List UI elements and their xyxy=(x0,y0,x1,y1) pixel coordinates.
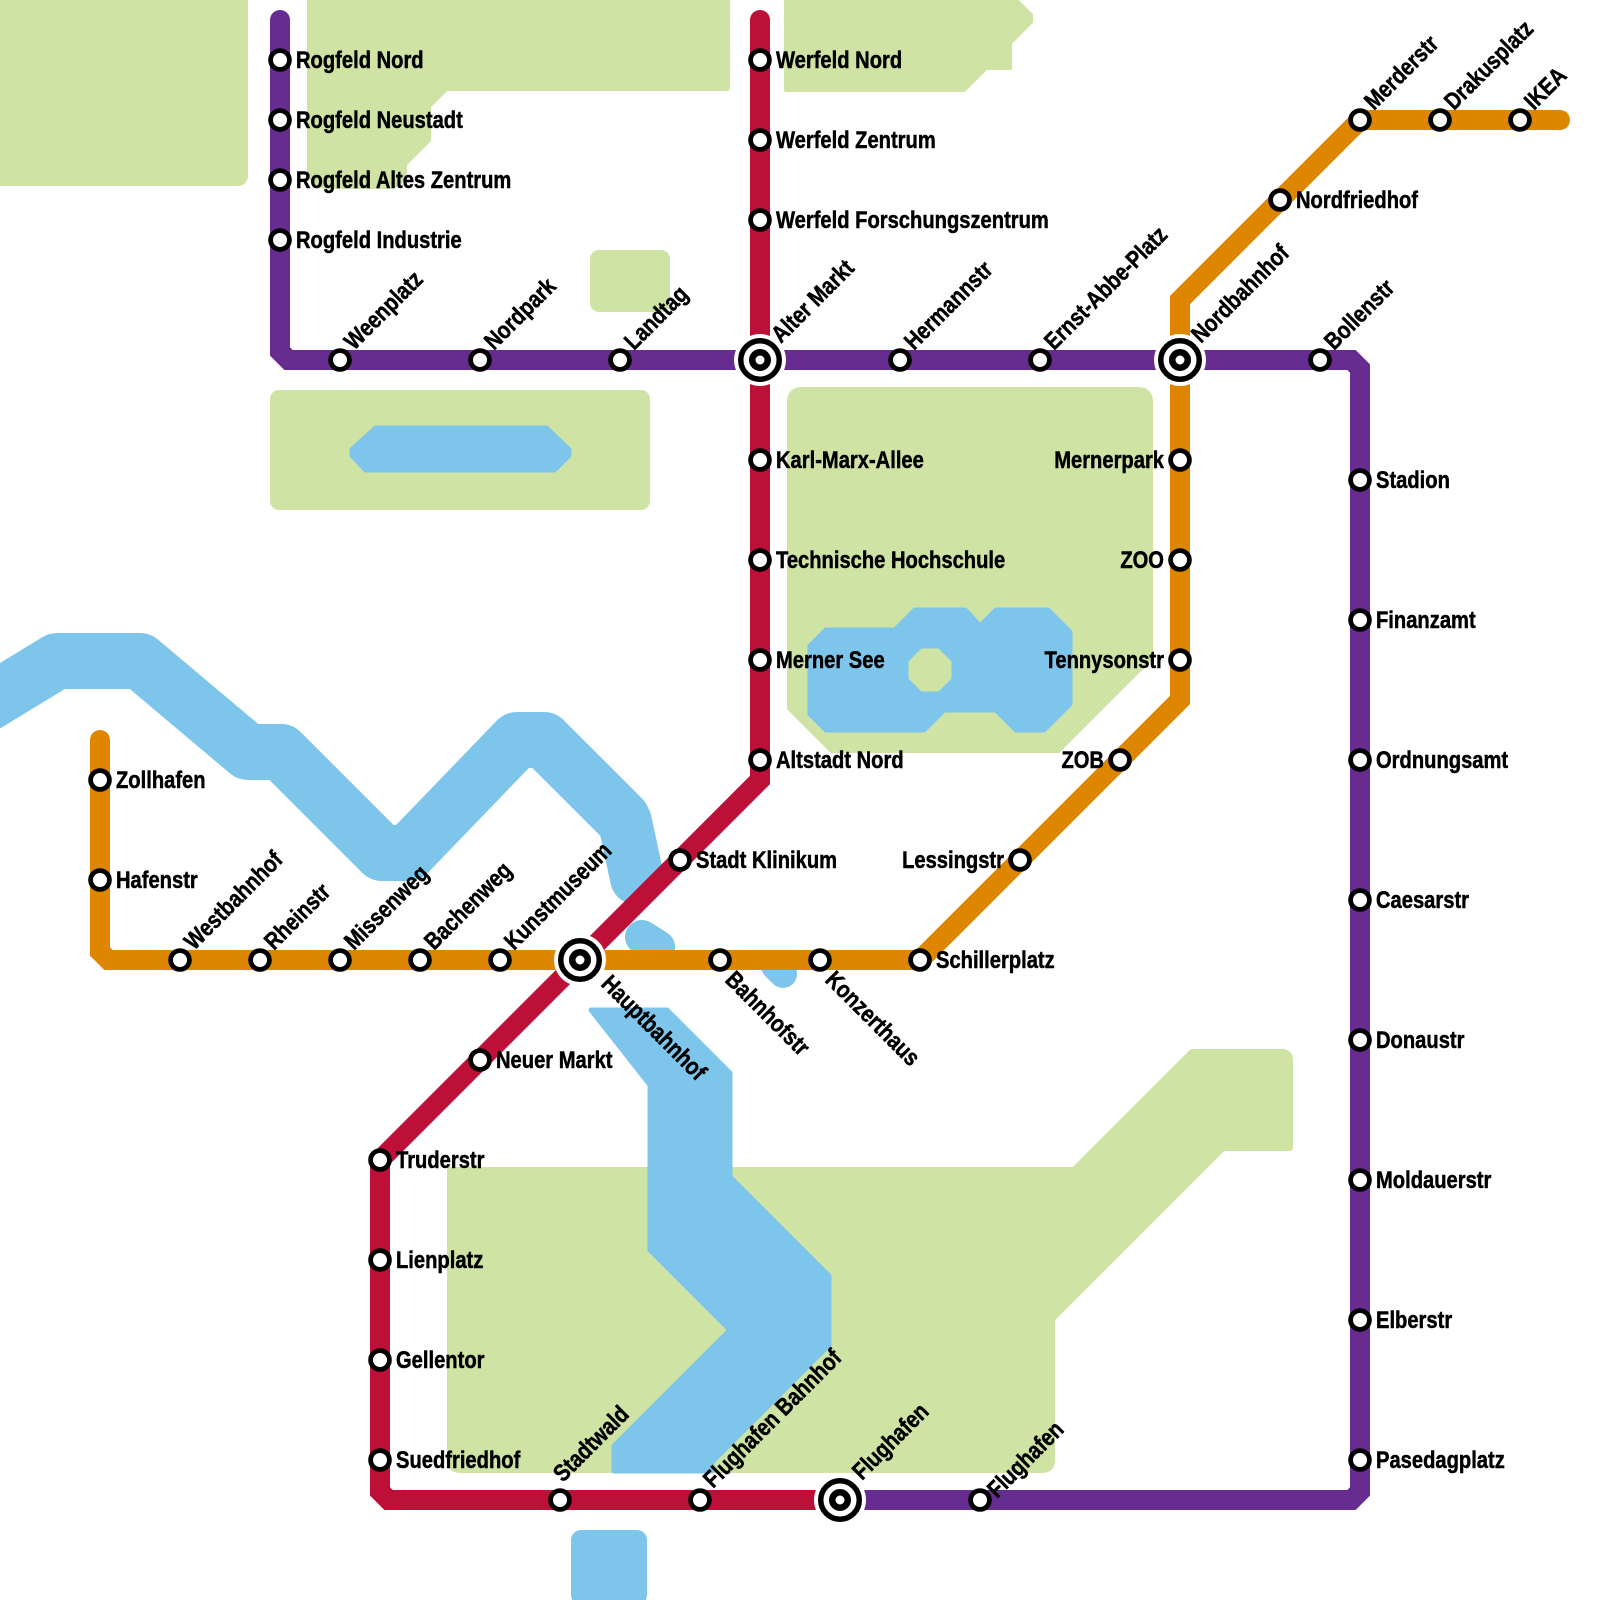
svg-text:Mernerpark: Mernerpark xyxy=(1054,446,1164,473)
svg-text:Gellentor: Gellentor xyxy=(396,1346,485,1373)
svg-text:Truderstr: Truderstr xyxy=(396,1146,485,1173)
svg-text:Bollenstr: Bollenstr xyxy=(1319,274,1400,355)
svg-text:Lessingstr: Lessingstr xyxy=(902,846,1004,873)
svg-text:Rogfeld Altes Zentrum: Rogfeld Altes Zentrum xyxy=(296,166,511,193)
svg-text:Bahnhofstr: Bahnhofstr xyxy=(720,966,815,1061)
svg-text:Finanzamt: Finanzamt xyxy=(1376,606,1476,633)
svg-text:Schillerplatz: Schillerplatz xyxy=(936,946,1055,973)
svg-text:ZOB: ZOB xyxy=(1061,746,1104,773)
svg-text:Rheinstr: Rheinstr xyxy=(259,878,336,955)
svg-text:Caesarstr: Caesarstr xyxy=(1376,886,1469,913)
svg-text:Weenplatz: Weenplatz xyxy=(339,265,428,354)
svg-text:Werfeld Forschungszentrum: Werfeld Forschungszentrum xyxy=(776,206,1049,233)
svg-text:Nordpark: Nordpark xyxy=(479,272,562,355)
svg-text:Donaustr: Donaustr xyxy=(1376,1026,1465,1053)
svg-text:Lienplatz: Lienplatz xyxy=(396,1246,483,1273)
svg-text:Ordnungsamt: Ordnungsamt xyxy=(1376,746,1509,773)
svg-text:Tennysonstr: Tennysonstr xyxy=(1045,646,1165,673)
svg-text:Karl-Marx-Allee: Karl-Marx-Allee xyxy=(776,446,924,473)
svg-text:IKEA: IKEA xyxy=(1519,62,1572,115)
svg-text:Neuer Markt: Neuer Markt xyxy=(496,1046,613,1073)
svg-text:Hafenstr: Hafenstr xyxy=(116,866,198,893)
svg-text:Rogfeld Neustadt: Rogfeld Neustadt xyxy=(296,106,463,133)
svg-text:Werfeld Nord: Werfeld Nord xyxy=(776,46,902,73)
svg-text:Elberstr: Elberstr xyxy=(1376,1306,1453,1333)
svg-text:Merner See: Merner See xyxy=(776,646,885,673)
svg-text:Hermannstr: Hermannstr xyxy=(899,255,998,354)
svg-text:Rogfeld Nord: Rogfeld Nord xyxy=(296,46,424,73)
svg-text:Ernst-Abbe-Platz: Ernst-Abbe-Platz xyxy=(1039,221,1173,355)
svg-text:Konzerthaus: Konzerthaus xyxy=(820,966,925,1071)
svg-text:Merderstr: Merderstr xyxy=(1359,30,1444,115)
svg-text:Zollhafen: Zollhafen xyxy=(116,766,206,793)
svg-text:ZOO: ZOO xyxy=(1120,546,1164,573)
svg-text:Moldauerstr: Moldauerstr xyxy=(1376,1166,1492,1193)
svg-text:Nordfriedhof: Nordfriedhof xyxy=(1296,186,1419,213)
svg-text:Rogfeld Industrie: Rogfeld Industrie xyxy=(296,226,462,253)
svg-text:Stadion: Stadion xyxy=(1376,466,1450,493)
svg-text:Altstadt Nord: Altstadt Nord xyxy=(776,746,904,773)
svg-text:Technische Hochschule: Technische Hochschule xyxy=(776,546,1005,573)
svg-text:Stadt Klinikum: Stadt Klinikum xyxy=(696,846,837,873)
svg-text:Suedfriedhof: Suedfriedhof xyxy=(396,1446,521,1473)
svg-text:Werfeld Zentrum: Werfeld Zentrum xyxy=(776,126,936,153)
svg-text:Alter Markt: Alter Markt xyxy=(766,254,860,348)
svg-text:Nordbahnhof: Nordbahnhof xyxy=(1186,239,1295,348)
svg-text:Pasedagplatz: Pasedagplatz xyxy=(1376,1446,1505,1473)
